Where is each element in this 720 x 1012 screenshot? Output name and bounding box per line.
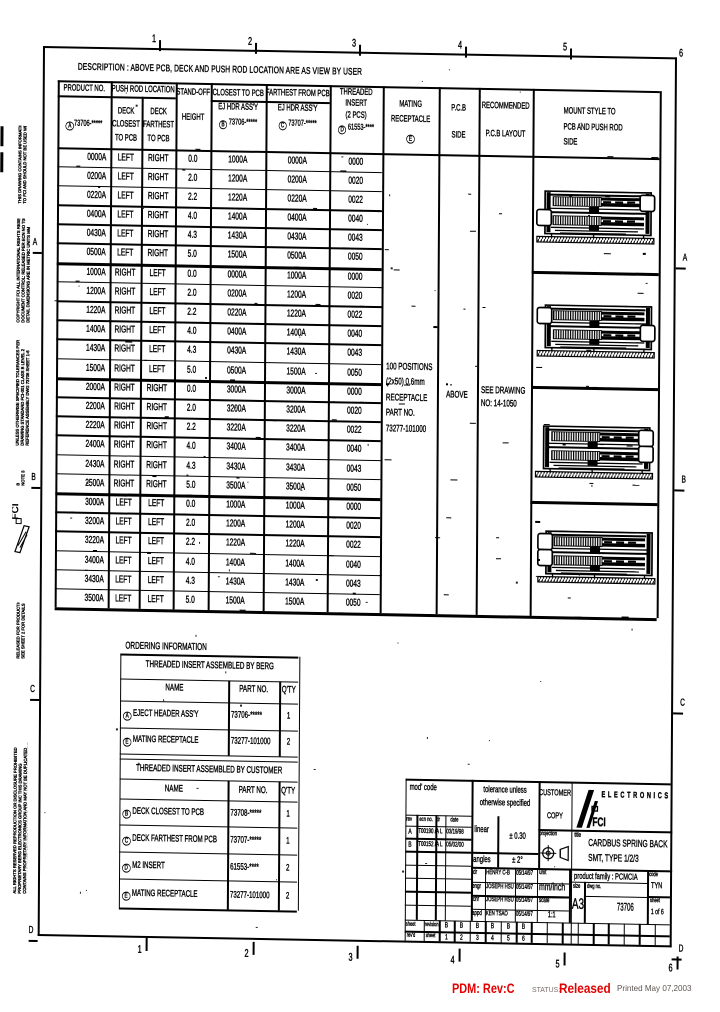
svg-text:FCI: FCI: [12, 503, 21, 520]
